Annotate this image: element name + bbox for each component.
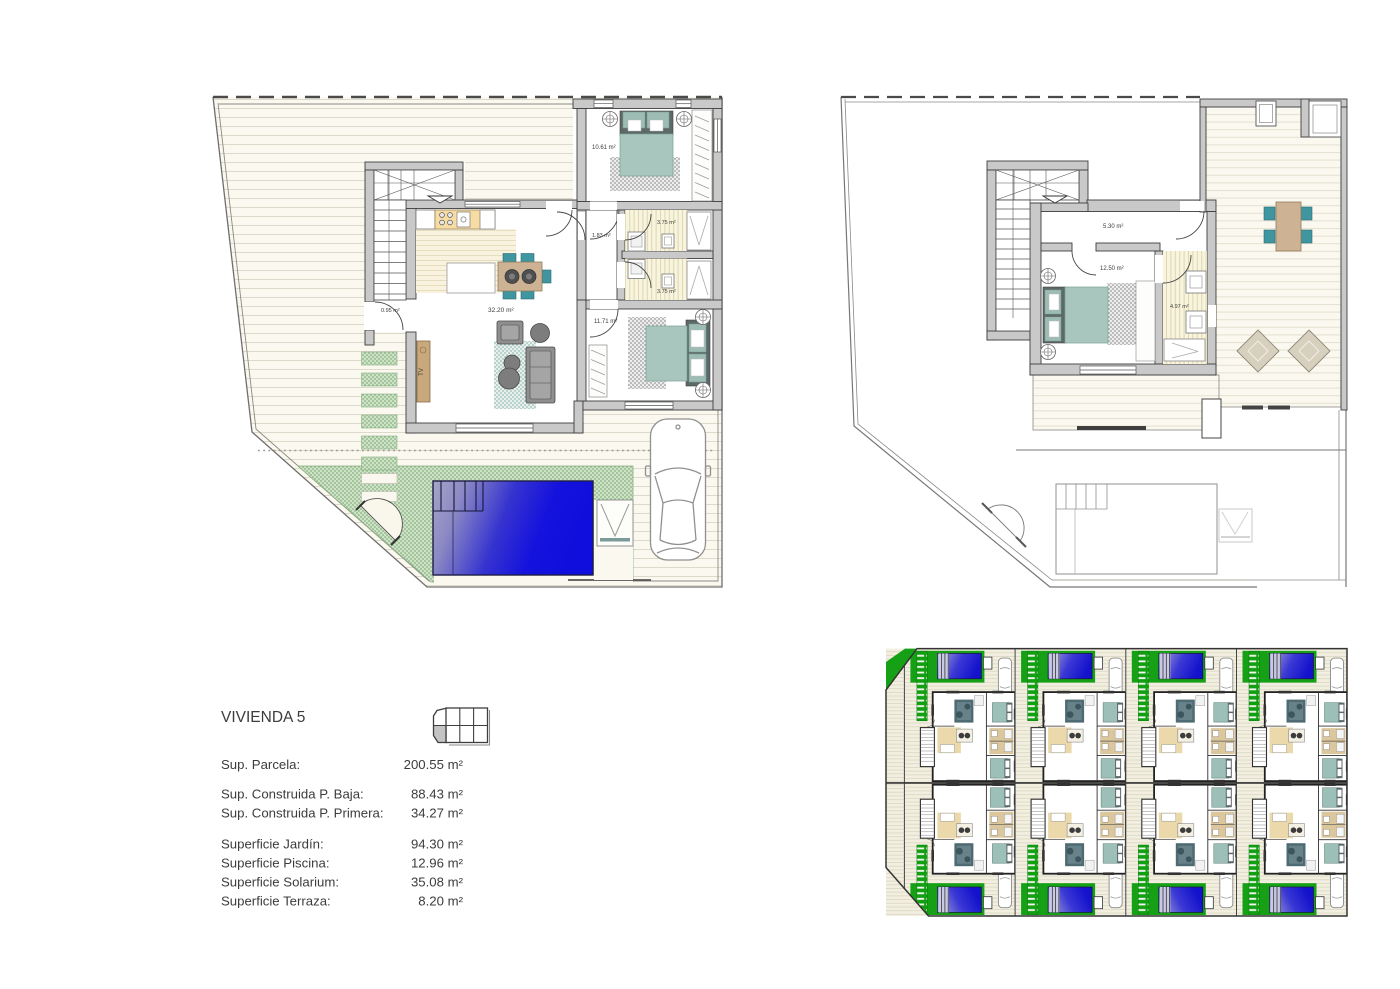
- svg-text:Sup. Construida P. Primera:: Sup. Construida P. Primera:: [221, 806, 383, 821]
- svg-text:10.61 m²: 10.61 m²: [592, 145, 616, 151]
- svg-text:Superficie Solarium:: Superficie Solarium:: [221, 875, 339, 890]
- svg-text:TV: TV: [419, 368, 425, 376]
- svg-text:Sup. Parcela:: Sup. Parcela:: [221, 757, 300, 772]
- svg-text:200.55 m²: 200.55 m²: [404, 757, 464, 772]
- svg-text:Superficie Terraza:: Superficie Terraza:: [221, 894, 331, 909]
- svg-text:12.50 m²: 12.50 m²: [1100, 266, 1124, 272]
- svg-text:VIVIENDA 5: VIVIENDA 5: [221, 709, 305, 726]
- svg-text:0.95 m²: 0.95 m²: [381, 308, 400, 314]
- svg-text:32.20 m²: 32.20 m²: [488, 307, 514, 314]
- svg-text:34.27 m²: 34.27 m²: [411, 806, 464, 821]
- svg-text:3.75 m²: 3.75 m²: [657, 220, 676, 226]
- svg-text:35.08 m²: 35.08 m²: [411, 875, 464, 890]
- svg-text:12.96 m²: 12.96 m²: [411, 856, 464, 871]
- svg-text:8.20 m²: 8.20 m²: [418, 894, 463, 909]
- svg-text:Sup. Construida P. Baja:: Sup. Construida P. Baja:: [221, 787, 364, 802]
- svg-text:94.30 m²: 94.30 m²: [411, 837, 464, 852]
- svg-text:4.97 m²: 4.97 m²: [1170, 304, 1189, 310]
- svg-text:88.43 m²: 88.43 m²: [411, 787, 464, 802]
- svg-text:1.83 m²: 1.83 m²: [592, 233, 611, 239]
- svg-text:5.30 m²: 5.30 m²: [1103, 224, 1123, 230]
- svg-text:Superficie Piscina:: Superficie Piscina:: [221, 856, 329, 871]
- svg-text:3.75 m²: 3.75 m²: [657, 289, 676, 295]
- svg-text:Superficie Jardín:: Superficie Jardín:: [221, 837, 324, 852]
